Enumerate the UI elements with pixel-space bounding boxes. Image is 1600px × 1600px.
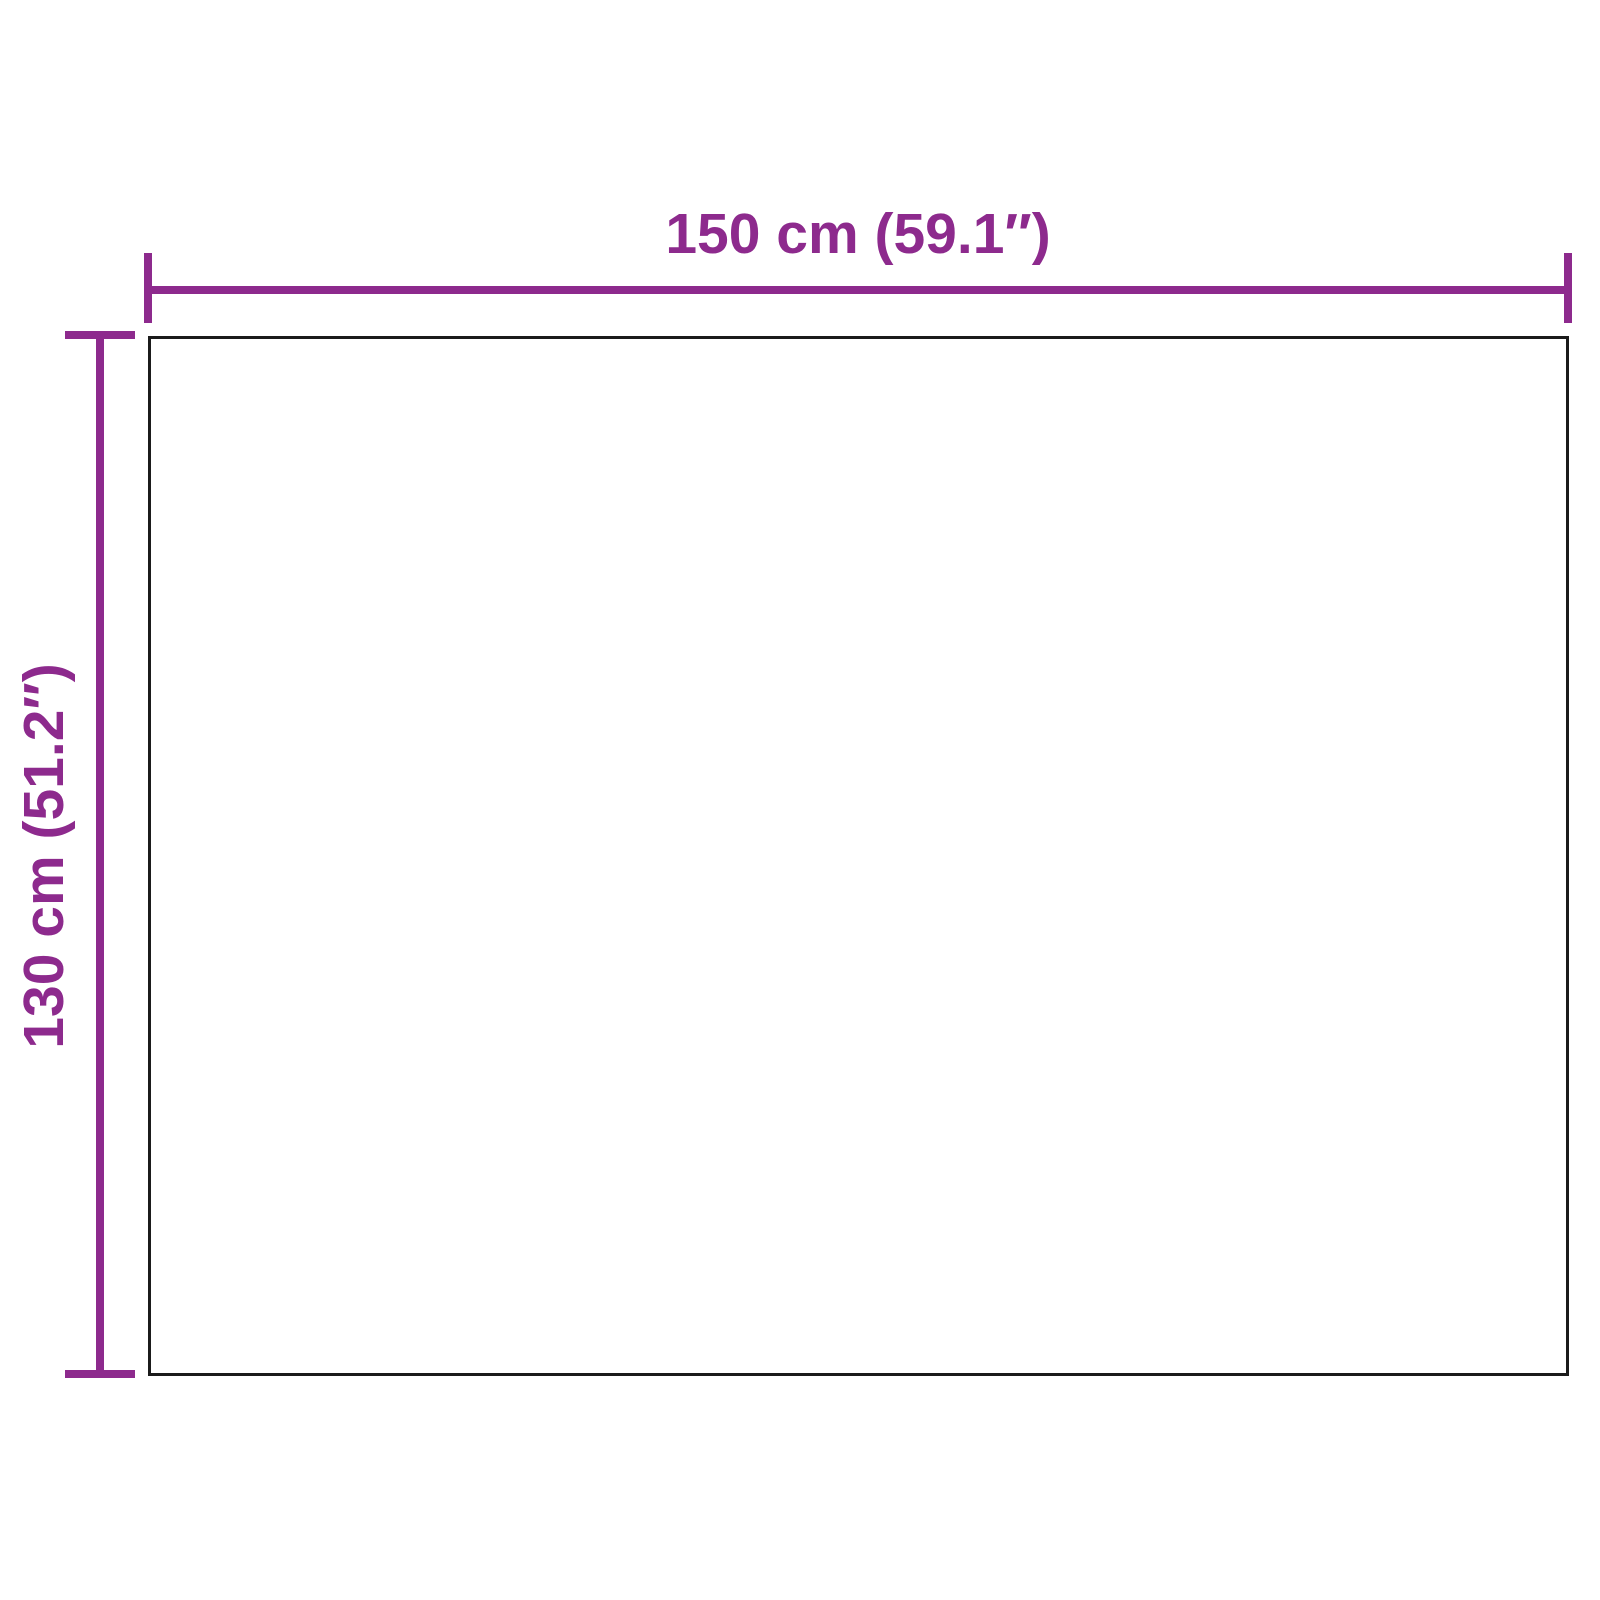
width-dimension-left-tick: [144, 253, 152, 323]
width-dimension-label: 150 cm (59.1″): [458, 198, 1258, 270]
width-dimension-line: [148, 286, 1568, 294]
height-dimension-top-tick: [65, 331, 135, 339]
height-dimension-label: 130 cm (51.2″): [4, 456, 84, 1256]
height-dimension-bottom-tick: [65, 1370, 135, 1378]
product-outline-rectangle: [148, 336, 1569, 1376]
height-dimension-line: [96, 335, 104, 1375]
dimension-diagram: 150 cm (59.1″) 130 cm (51.2″): [0, 0, 1600, 1600]
width-dimension-right-tick: [1564, 253, 1572, 323]
